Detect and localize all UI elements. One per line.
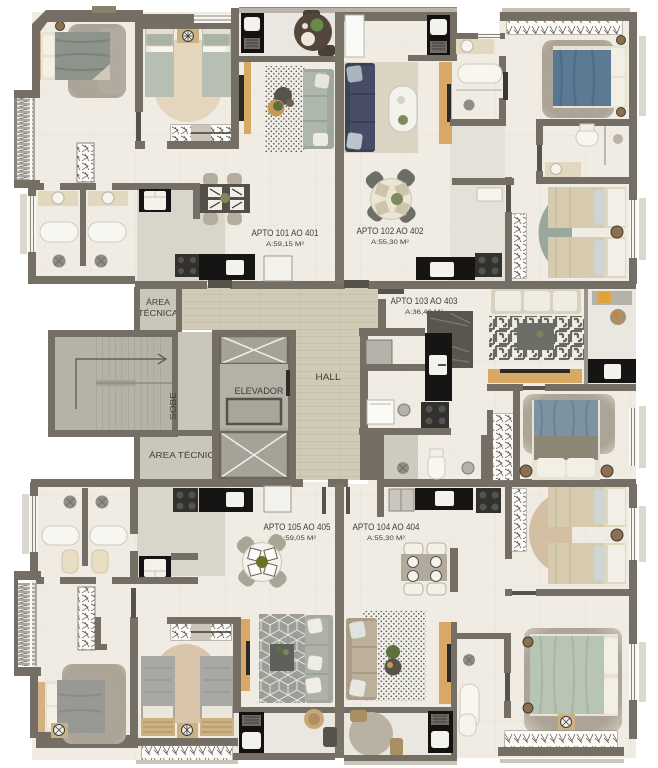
- svg-text:A:55,30 M²: A:55,30 M²: [371, 239, 410, 246]
- svg-text:A:59,15 M²: A:59,15 M²: [266, 241, 305, 248]
- svg-text:SOBE: SOBE: [168, 392, 178, 420]
- svg-text:APTO 103 AO 403: APTO 103 AO 403: [391, 296, 458, 307]
- svg-text:APTO 102 AO 402: APTO 102 AO 402: [357, 226, 424, 237]
- svg-text:A:55,30 M²: A:55,30 M²: [367, 535, 406, 542]
- svg-text:TÉCNICA: TÉCNICA: [138, 309, 179, 318]
- svg-text:APTO 105 AO 405: APTO 105 AO 405: [264, 522, 331, 533]
- svg-text:HALL: HALL: [316, 372, 341, 383]
- svg-text:ELEVADOR: ELEVADOR: [235, 386, 284, 396]
- svg-text:APTO 104 AO 404: APTO 104 AO 404: [353, 522, 420, 533]
- svg-text:ÁREA: ÁREA: [146, 298, 171, 307]
- svg-text:APTO 101 AO 401: APTO 101 AO 401: [252, 228, 319, 239]
- svg-text:ÁREA TÉCNICA: ÁREA TÉCNICA: [149, 450, 221, 460]
